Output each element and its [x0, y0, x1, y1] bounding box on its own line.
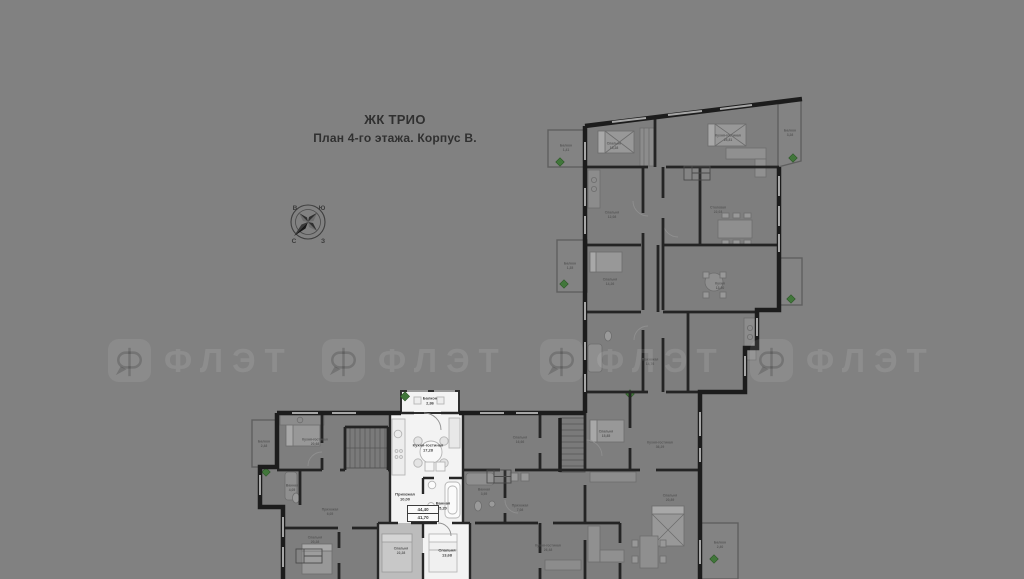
- floor-plan-drawing: [0, 0, 1024, 579]
- apartment-stamp: 44,40 41,70: [407, 505, 439, 522]
- stamp-living-area: 41,70: [417, 515, 428, 520]
- floor-plan-page: ЖК ТРИО План 4-го этажа. Корпус В. В Ю С…: [0, 0, 1024, 579]
- stamp-total-area: 44,40: [417, 507, 428, 512]
- building-fill: [260, 99, 802, 579]
